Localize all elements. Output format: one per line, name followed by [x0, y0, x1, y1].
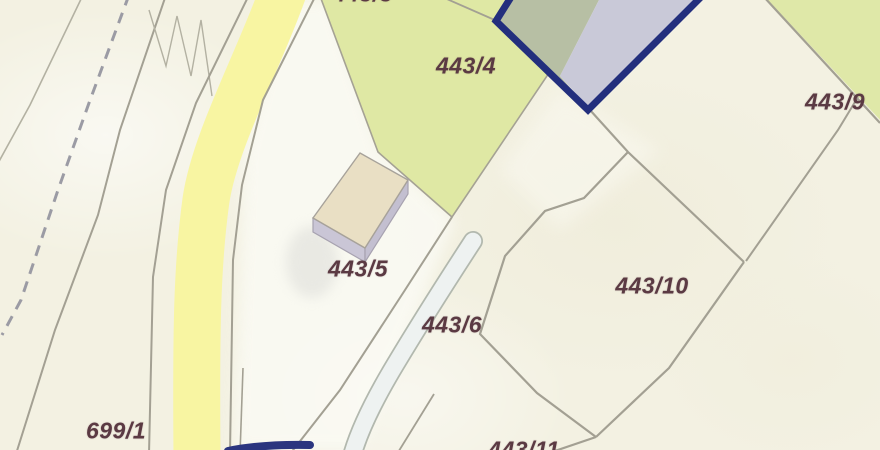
terrain-zigzag: [149, 10, 212, 96]
parcel-label-443-9: 443/9: [805, 89, 865, 116]
parcel-label-443-4: 443/4: [436, 53, 496, 80]
parcel-label-443-11: 443/11: [488, 437, 560, 450]
parcel-label-443-10: 443/10: [615, 273, 688, 300]
boundary-line-left-1: [0, 0, 83, 165]
map-canvas[interactable]: 443/3 443/4 443/9 443/5 443/6 443/10 699…: [0, 0, 880, 450]
boundary-short-bottom: [397, 394, 434, 450]
parcel-label-443-3: 443/3: [333, 0, 393, 8]
boundary-9-right: [746, 97, 858, 261]
parcel-label-443-5: 443/5: [328, 256, 388, 283]
parcel-label-443-6: 443/6: [422, 312, 482, 339]
parcel-label-699-1: 699/1: [86, 418, 146, 445]
boundary-line-left-2: [16, 0, 166, 450]
